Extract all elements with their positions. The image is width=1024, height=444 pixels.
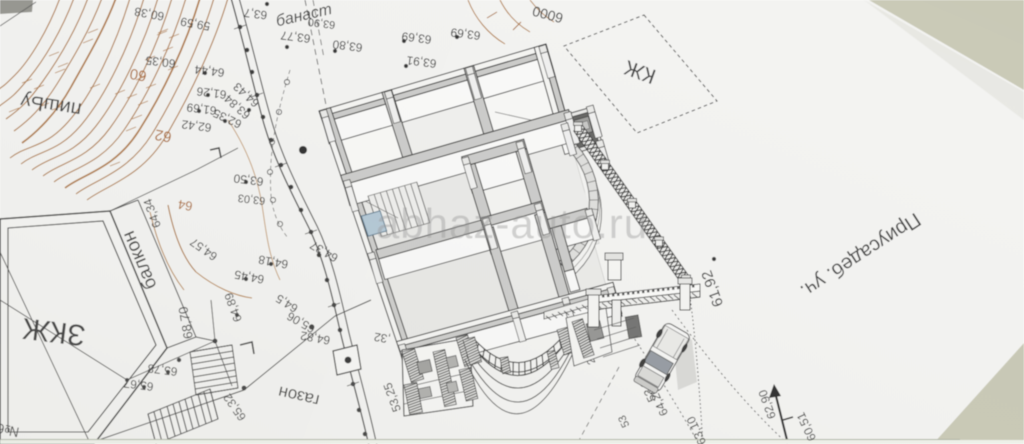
svg-text:abhaz-auto.ru: abhaz-auto.ru (376, 200, 648, 247)
